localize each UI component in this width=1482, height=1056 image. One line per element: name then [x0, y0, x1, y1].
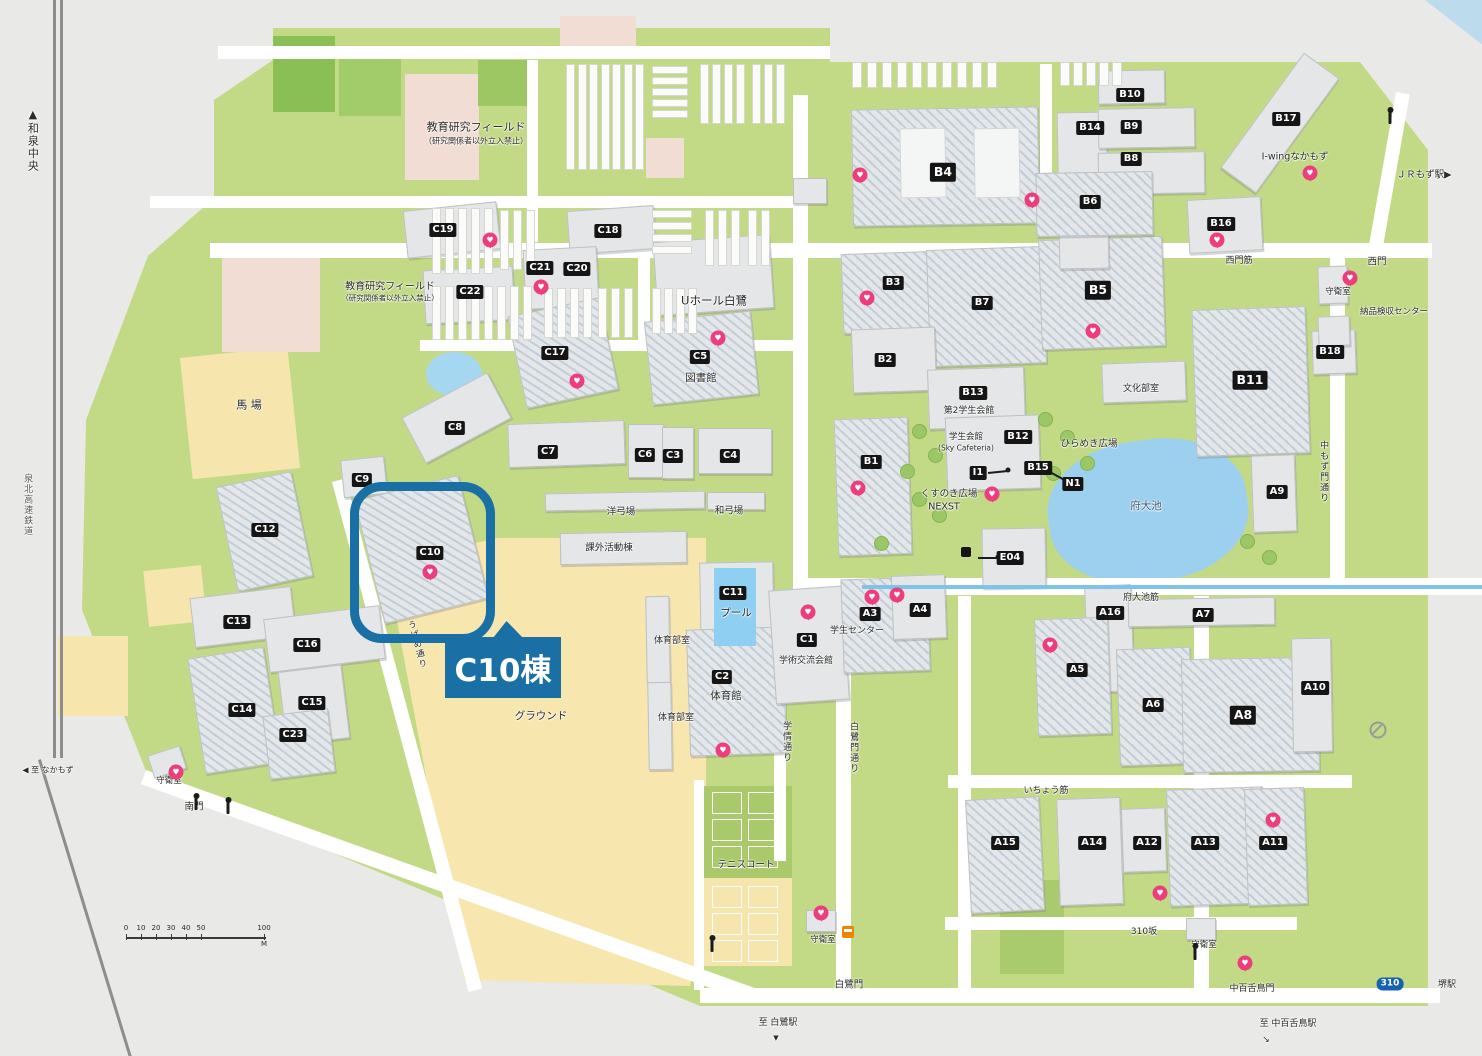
- map-label: ↘: [1262, 1035, 1270, 1045]
- building-label-chip: C7: [538, 445, 558, 459]
- field-strip: [471, 208, 480, 274]
- building-label-chip: B9: [1121, 120, 1142, 134]
- map-label: （研究関係者以外立入禁止）: [424, 136, 528, 145]
- building-label-chip: C21: [526, 261, 553, 275]
- map-label: 学情通り: [781, 721, 791, 763]
- scale-unit: M: [261, 940, 267, 948]
- field-strip: [652, 234, 692, 242]
- map-label: (Sky Cafeteria): [938, 445, 994, 454]
- pink-pin-icon: ♥: [534, 280, 549, 295]
- pink-pin-icon: ♥: [711, 331, 726, 346]
- building-label-chip: A6: [1143, 698, 1164, 712]
- map-label: 府大池筋: [1123, 593, 1159, 603]
- pink-pin-icon: ♥: [851, 481, 866, 496]
- building-label-chip: C22: [456, 285, 483, 299]
- building-label-chip: E04: [997, 551, 1024, 565]
- tree-icon: [1240, 534, 1255, 549]
- pink-pin-icon: ♥: [716, 743, 731, 758]
- c10-highlight-ring: [350, 482, 495, 643]
- building: [1101, 361, 1186, 404]
- map-label: 馬 場: [236, 400, 262, 413]
- field-strip: [987, 62, 997, 88]
- building-label-chip: B12: [1004, 430, 1032, 444]
- building-label-chip: A7: [1193, 608, 1214, 622]
- scale-number: 50: [197, 924, 206, 932]
- gate-marker-icon: [227, 802, 230, 814]
- building-label-chip: C20: [563, 262, 590, 276]
- road: [218, 46, 830, 59]
- field-strip: [1099, 62, 1109, 86]
- water-area: [1389, 0, 1482, 64]
- field-strip: [458, 208, 467, 274]
- map-label: 至 白鷺駅: [759, 1018, 798, 1028]
- road: [694, 780, 704, 990]
- map-label: 洋弓場: [607, 508, 636, 519]
- building: [507, 420, 625, 468]
- building-label-chip: C8: [445, 421, 465, 435]
- map-label: 体育館: [710, 690, 742, 702]
- tennis-court: [748, 792, 778, 814]
- tennis-court: [748, 886, 778, 908]
- building-label-chip: A13: [1191, 836, 1219, 850]
- pink-pin-icon: ♥: [1303, 166, 1318, 181]
- building-label-chip: A3: [860, 607, 881, 621]
- scale-number: 30: [167, 924, 176, 932]
- building-label-chip: B13: [959, 386, 987, 400]
- field-strip: [589, 64, 598, 170]
- building-label-chip: B6: [1080, 195, 1101, 209]
- map-label: 堺駅: [1438, 980, 1456, 990]
- c10-callout-box: C10棟: [445, 637, 561, 698]
- field-strip: [513, 210, 522, 270]
- field-strip: [652, 77, 688, 85]
- building-label-chip: A15: [991, 836, 1019, 850]
- field-strip: [718, 210, 727, 266]
- road: [948, 775, 1352, 788]
- building-label-chip: C13: [223, 615, 250, 629]
- building-label-chip: B17: [1272, 112, 1300, 126]
- building-label-chip: B11: [1233, 371, 1268, 390]
- field-strip: [897, 62, 907, 88]
- field-strip: [1112, 62, 1122, 86]
- building-label-chip: C14: [228, 703, 255, 717]
- gate-marker-icon: [195, 798, 198, 810]
- tree-icon: [900, 464, 915, 479]
- road: [700, 988, 1440, 1003]
- map-label: Uホール白鷺: [681, 294, 747, 307]
- field-strip: [972, 62, 982, 88]
- map-label: 府大池: [1130, 500, 1162, 512]
- railway-line: [53, 0, 56, 758]
- map-label: 教育研究フィールド: [345, 281, 435, 293]
- pink-pin-icon: ♥: [853, 168, 868, 183]
- building: [834, 417, 913, 556]
- building-label-chip: C5: [690, 350, 710, 364]
- field-strip: [624, 288, 633, 338]
- building-label-chip: B14: [1076, 121, 1104, 135]
- field-strip: [583, 288, 592, 338]
- map-label: I-wingなかもず: [1262, 153, 1329, 164]
- building: [262, 708, 335, 780]
- pink-pin-icon: ♥: [1238, 956, 1253, 971]
- field-strip: [578, 64, 587, 170]
- field-strip: [652, 66, 688, 74]
- tree-icon: [874, 536, 889, 551]
- building-label-chip: B15: [1024, 461, 1052, 475]
- tennis-court: [712, 940, 742, 962]
- tree-icon: [912, 424, 927, 439]
- building: [965, 796, 1045, 914]
- field-strip: [664, 288, 673, 334]
- road: [958, 596, 971, 990]
- map-area: [478, 60, 528, 106]
- field-strip: [445, 208, 454, 274]
- building-label-chip: A9: [1267, 485, 1288, 499]
- road: [1040, 64, 1052, 182]
- map-label: ▲和泉中央: [26, 108, 39, 173]
- field-strip: [500, 210, 509, 270]
- pink-pin-icon: ♥: [1266, 813, 1281, 828]
- pink-pin-icon: ♥: [801, 605, 816, 620]
- map-label: NEXST: [928, 503, 959, 514]
- tennis-court: [748, 940, 778, 962]
- map-label: ▼: [773, 1034, 778, 1042]
- building: [647, 682, 673, 770]
- building-label-chip: C19: [429, 223, 456, 237]
- map-label: 学生会館: [949, 433, 983, 443]
- pink-pin-icon: ♥: [860, 291, 875, 306]
- map-area: [58, 636, 128, 716]
- road: [945, 917, 1297, 930]
- map-label: 体育部室: [658, 713, 694, 723]
- building-label-chip: B2: [875, 353, 896, 367]
- tennis-court: [748, 913, 778, 935]
- field-strip: [566, 64, 575, 170]
- building-label-chip: A12: [1133, 836, 1161, 850]
- map-label: 中百舌鳥門: [1229, 984, 1274, 994]
- map-label: 至 中百舌鳥駅: [1260, 1019, 1317, 1029]
- building: [973, 128, 1020, 199]
- building-label-chip: C23: [279, 728, 306, 742]
- tennis-court: [712, 886, 742, 908]
- field-strip: [497, 286, 506, 340]
- building-label-chip: B7: [972, 296, 993, 310]
- mini-chip: [961, 547, 971, 557]
- field-strip: [445, 286, 454, 340]
- pink-pin-icon: ♥: [1043, 638, 1058, 653]
- field-strip: [1060, 62, 1070, 86]
- building-label-chip: C15: [298, 696, 325, 710]
- field-strip: [624, 64, 633, 170]
- map-label: 守衛室: [810, 936, 836, 946]
- no-entry-icon: [1370, 722, 1387, 739]
- scale-number: 0: [124, 924, 128, 932]
- map-label: グラウンド: [515, 710, 568, 722]
- field-strip: [484, 286, 493, 340]
- field-strip: [927, 62, 937, 88]
- field-strip: [601, 64, 610, 170]
- building-label-chip: A8: [1230, 706, 1256, 725]
- field-strip: [652, 88, 688, 96]
- building: [1186, 918, 1216, 940]
- field-strip: [867, 62, 877, 88]
- building: [793, 178, 827, 204]
- map-label: 教育研究フィールド: [427, 122, 526, 135]
- field-strip: [776, 64, 785, 124]
- field-strip: [700, 64, 709, 124]
- tree-icon: [1080, 456, 1095, 471]
- building-label-chip: C18: [594, 224, 621, 238]
- building-label-chip: A10: [1301, 681, 1329, 695]
- field-strip: [1086, 62, 1096, 86]
- field-strip: [652, 99, 688, 107]
- field-strip: [882, 62, 892, 88]
- c10-callout-label: C10棟: [455, 645, 552, 690]
- pink-pin-icon: ♥: [483, 233, 498, 248]
- scale-number: 100: [257, 924, 270, 932]
- map-label: 体育部室: [654, 636, 690, 646]
- map-label: 第2学生会館: [944, 406, 995, 416]
- tree-icon: [1262, 550, 1277, 565]
- pink-pin-icon: ♥: [890, 588, 905, 603]
- map-label: 納品検収センター: [1360, 308, 1428, 318]
- pink-pin-icon: ♥: [169, 765, 184, 780]
- field-strip: [611, 288, 620, 338]
- leader-dot: [1006, 468, 1011, 473]
- building-label-chip: B10: [1116, 88, 1144, 102]
- field-strip: [705, 210, 714, 266]
- map-label: ◀ 至 なかもず: [22, 765, 73, 774]
- pink-pin-icon: ♥: [1153, 886, 1168, 901]
- field-strip: [523, 286, 532, 340]
- field-strip: [761, 210, 770, 266]
- map-label: 図書館: [685, 372, 717, 384]
- map-label: 課外活動棟: [585, 544, 633, 555]
- field-strip: [1073, 62, 1083, 86]
- map-label: 中もず門通り: [1318, 441, 1328, 504]
- building-label-chip: A14: [1078, 836, 1106, 850]
- railway-line: [38, 759, 137, 1056]
- building-label-chip: C11: [719, 586, 746, 600]
- building: [1317, 265, 1348, 304]
- field-strip: [432, 208, 441, 274]
- building-label-chip: C17: [541, 346, 568, 360]
- tennis-court: [712, 913, 742, 935]
- building-label-chip: C12: [251, 523, 278, 537]
- pink-pin-icon: ♥: [1086, 324, 1101, 339]
- field-strip: [724, 64, 733, 124]
- map-label: 泉北高速鉄道: [22, 474, 32, 537]
- map-label: 学生センター: [830, 626, 884, 636]
- field-strip: [957, 62, 967, 88]
- field-strip: [652, 246, 692, 254]
- scale-number: 40: [182, 924, 191, 932]
- map-area: [646, 138, 684, 178]
- gate-marker-icon: [711, 940, 714, 952]
- map-label: ひらめき広場: [1060, 440, 1117, 451]
- building-label-chip: B4: [930, 163, 956, 182]
- map-label: 310坂: [1131, 927, 1157, 937]
- pink-pin-icon: ♥: [570, 374, 585, 389]
- field-strip: [748, 210, 757, 266]
- building-label-chip: I1: [970, 466, 987, 480]
- building: [1291, 638, 1333, 753]
- field-strip: [731, 210, 740, 266]
- map-label: 守衛室: [1325, 288, 1351, 298]
- building-label-chip: C16: [293, 638, 320, 652]
- building-label-chip: N1: [1062, 477, 1083, 491]
- road: [793, 95, 808, 595]
- map-label: 白鷺門通り: [848, 722, 858, 775]
- field-strip: [764, 64, 773, 124]
- field-strip: [612, 64, 621, 170]
- building-label-chip: B5: [1085, 281, 1111, 300]
- map-label: 西門: [1367, 258, 1386, 269]
- field-strip: [942, 62, 952, 88]
- building-label-chip: C6: [635, 448, 655, 462]
- tennis-court: [712, 792, 742, 814]
- field-strip: [570, 288, 579, 338]
- field-strip: [598, 288, 607, 338]
- building-label-chip: A4: [910, 603, 931, 617]
- field-strip: [736, 64, 745, 124]
- map-label: いちょう筋: [1023, 786, 1068, 796]
- field-strip: [652, 222, 692, 230]
- building-label-chip: C4: [720, 449, 740, 463]
- gate-marker-icon: [1194, 948, 1197, 960]
- map-label: 西門筋: [1225, 256, 1252, 266]
- building-label-chip: A5: [1067, 663, 1088, 677]
- building-label-chip: C1: [797, 633, 817, 647]
- railway-line: [60, 0, 63, 758]
- pink-pin-icon: ♥: [1343, 271, 1358, 286]
- map-label: 白鷺門: [835, 981, 864, 992]
- building-label-chip: B18: [1316, 345, 1344, 359]
- building-label-chip: A16: [1096, 606, 1124, 620]
- map-label: ＪＲもず駅▶: [1397, 171, 1452, 182]
- field-strip: [510, 286, 519, 340]
- map-label: テニスコート: [717, 861, 774, 872]
- field-strip: [652, 110, 688, 118]
- map-label: 学術交流会館: [779, 656, 833, 666]
- field-strip: [544, 288, 553, 338]
- bus-stop-icon: [842, 926, 854, 938]
- pink-pin-icon: ♥: [814, 906, 829, 921]
- pink-pin-icon: ♥: [865, 590, 880, 605]
- map-label: （研究関係者以外立入禁止）: [341, 295, 439, 304]
- field-strip: [912, 62, 922, 88]
- campus-map-canvas: C10棟 01020304050100M ♥♥♥♥♥♥♥♥♥♥♥♥♥♥♥♥♥♥♥…: [0, 0, 1482, 1056]
- building-label-chip: A11: [1259, 836, 1287, 850]
- gate-marker-icon: [1389, 112, 1392, 124]
- building: [1098, 107, 1196, 149]
- building-label-chip: B1: [861, 455, 882, 469]
- pink-pin-icon: ♥: [985, 487, 1000, 502]
- field-strip: [652, 210, 692, 218]
- map-area: [180, 347, 300, 480]
- field-strip: [712, 64, 721, 124]
- building-label-chip: B16: [1207, 217, 1235, 231]
- building: [1317, 315, 1350, 346]
- building-label-chip: C2: [712, 670, 732, 684]
- tree-icon: [1038, 412, 1053, 427]
- building-label-chip: C3: [663, 449, 683, 463]
- map-area: [222, 256, 320, 352]
- field-strip: [852, 62, 862, 88]
- water-area: [862, 585, 1482, 589]
- scale-number: 20: [152, 924, 161, 932]
- scale-number: 10: [137, 924, 146, 932]
- pink-pin-icon: ♥: [1025, 193, 1040, 208]
- tennis-court: [748, 819, 778, 841]
- field-strip: [752, 64, 761, 124]
- pink-pin-icon: ♥: [1210, 233, 1225, 248]
- map-label: 和弓場: [715, 507, 744, 518]
- field-strip: [557, 288, 566, 338]
- scale-line: [126, 937, 266, 939]
- building-label-chip: B8: [1121, 152, 1142, 166]
- tennis-court: [712, 819, 742, 841]
- building: [1056, 797, 1124, 906]
- route-310-shield: 310: [1377, 978, 1404, 991]
- scale-bar: 01020304050100M: [124, 924, 284, 952]
- map-label: プール: [720, 607, 752, 619]
- map-label: 文化部室: [1123, 384, 1159, 394]
- building-label-chip: B3: [883, 276, 904, 290]
- field-strip: [652, 288, 661, 334]
- field-strip: [635, 64, 644, 170]
- map-label: くすのき広場: [921, 490, 978, 501]
